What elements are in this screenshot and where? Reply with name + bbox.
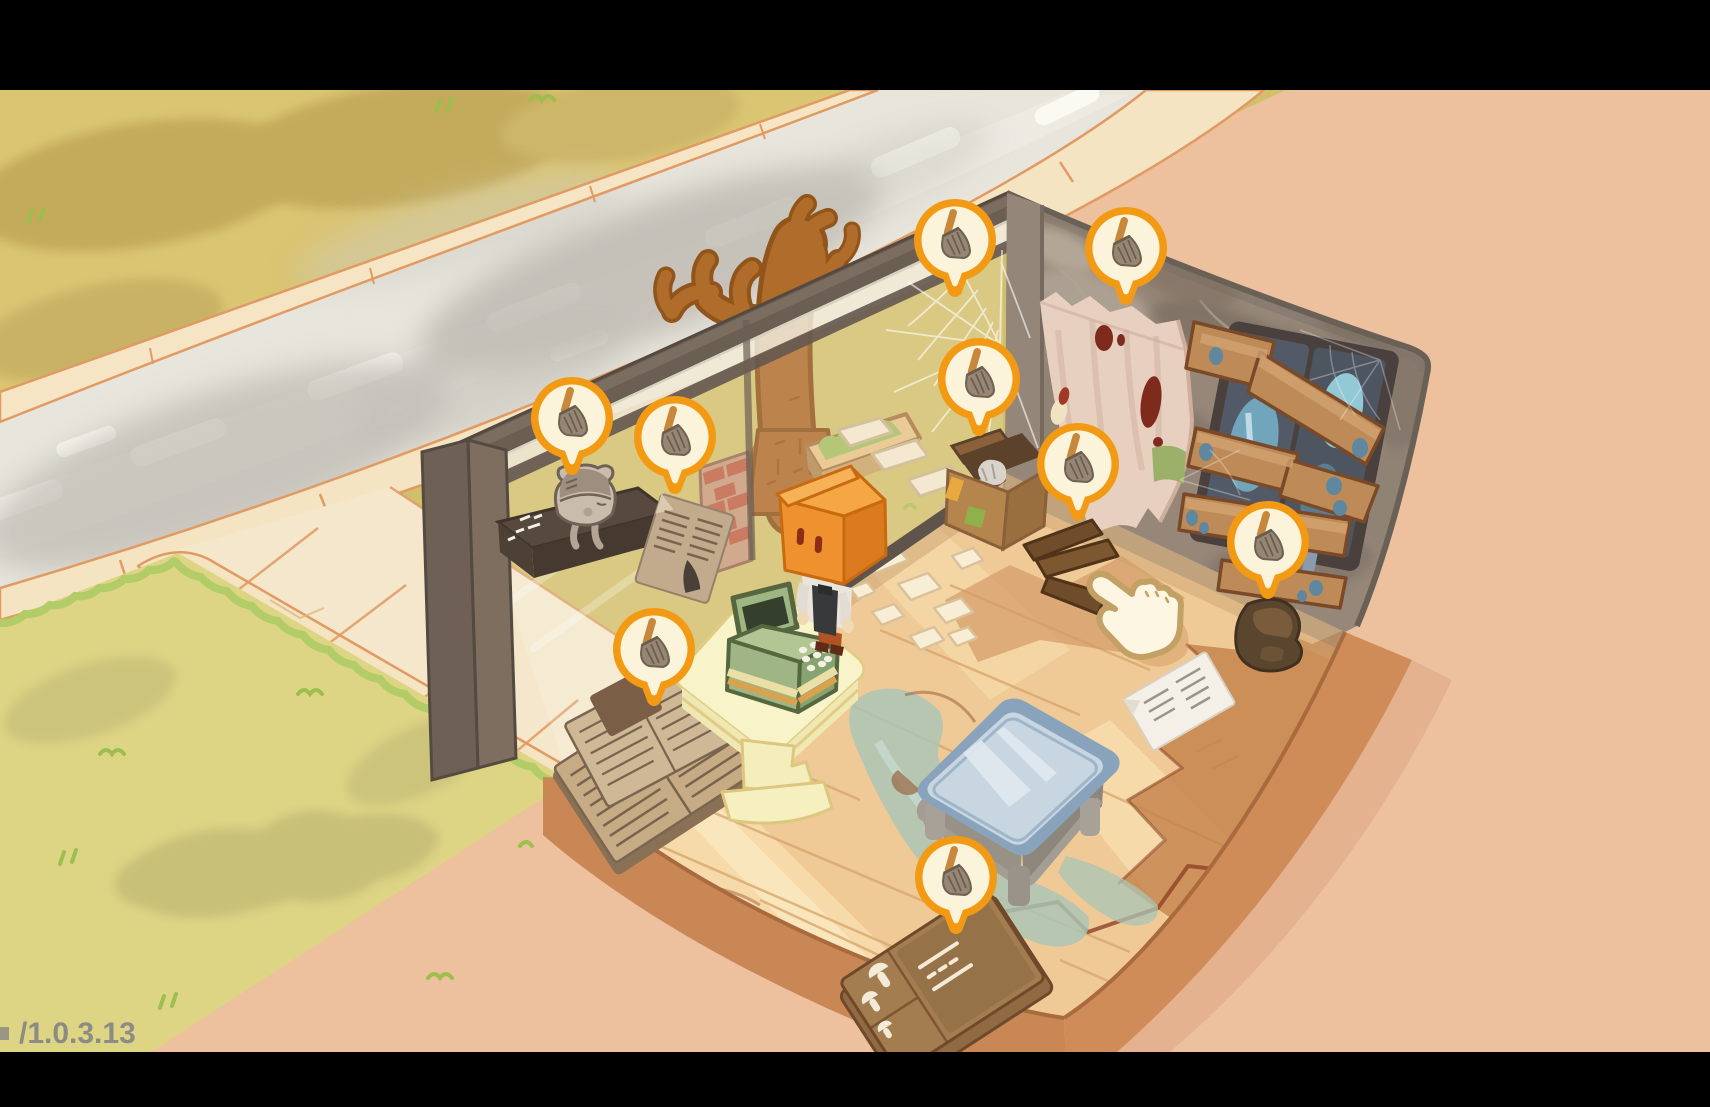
svg-text:/1.0.3.13: /1.0.3.13 bbox=[19, 1017, 136, 1050]
